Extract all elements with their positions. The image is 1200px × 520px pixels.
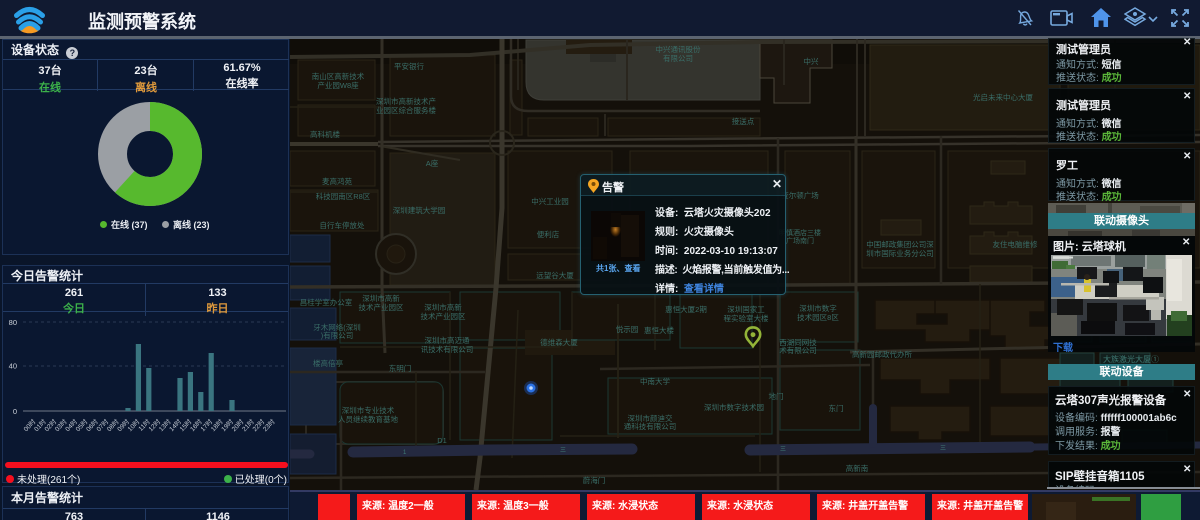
svg-text:中兴工业园: 中兴工业园: [531, 196, 569, 206]
svg-text:自行车停放处: 自行车停放处: [320, 220, 365, 230]
svg-text:便利店: 便利店: [537, 229, 560, 239]
svg-text:三: 三: [940, 445, 946, 452]
svg-text:术有限公司: 术有限公司: [779, 345, 817, 355]
svg-text:悦示园: 悦示园: [616, 324, 639, 334]
svg-text:0: 0: [13, 407, 17, 416]
svg-text:80: 80: [9, 318, 17, 327]
svg-text:业园区综合服务楼: 业园区综合服务楼: [376, 105, 436, 115]
svg-text:程实验室大楼: 程实验室大楼: [724, 313, 769, 323]
svg-text:三: 三: [780, 446, 786, 453]
svg-text:技术园区8区: 技术园区8区: [797, 312, 839, 322]
svg-text:中兴通讯股份: 中兴通讯股份: [656, 44, 701, 54]
svg-text:技术产业园区: 技术产业园区: [359, 302, 404, 312]
svg-text:德维森大厦: 德维森大厦: [540, 337, 578, 347]
svg-text:楼高倍亭: 楼高倍亭: [313, 358, 343, 368]
svg-text:深圳市专业技术: 深圳市专业技术: [342, 405, 395, 415]
svg-text:圳市国际业务分公司: 圳市国际业务分公司: [866, 248, 934, 258]
svg-text:接送点: 接送点: [732, 116, 755, 126]
svg-text:昌桂学室办公室: 昌桂学室办公室: [300, 297, 353, 307]
svg-text:三: 三: [560, 447, 566, 454]
svg-text:麦高鸿苑: 麦高鸿苑: [322, 176, 352, 186]
svg-text:远望谷大厦: 远望谷大厦: [536, 270, 574, 280]
svg-text:深圳市高新: 深圳市高新: [424, 302, 462, 312]
svg-text:人员继续教育基地: 人员继续教育基地: [338, 414, 398, 424]
svg-text:通科技有限公司: 通科技有限公司: [624, 421, 677, 431]
svg-text:科技园南区R8区: 科技园南区R8区: [316, 191, 371, 201]
svg-text:深圳市高新: 深圳市高新: [362, 293, 400, 303]
svg-text:高新园邮政代办所: 高新园邮政代办所: [852, 349, 912, 359]
svg-text:惠恒大楼: 惠恒大楼: [644, 325, 674, 335]
svg-text:深圳市高新技术产: 深圳市高新技术产: [376, 96, 436, 106]
svg-text:蔚海门: 蔚海门: [583, 475, 606, 485]
svg-text:查尔顿广场: 查尔顿广场: [781, 190, 819, 200]
svg-text:高新南: 高新南: [846, 463, 869, 473]
svg-text:讯技术有限公司: 讯技术有限公司: [421, 344, 474, 354]
svg-text:技术产业园区: 技术产业园区: [421, 311, 466, 321]
svg-text:高科机楼: 高科机楼: [310, 129, 340, 139]
svg-text:东明门: 东明门: [389, 363, 412, 373]
svg-text:中国邮政集团公司深: 中国邮政集团公司深: [866, 239, 934, 249]
svg-text:广场南门: 广场南门: [786, 236, 814, 245]
svg-text:东门: 东门: [829, 403, 844, 413]
svg-text:深圳市数字: 深圳市数字: [799, 303, 837, 313]
svg-text:南山区高新技术: 南山区高新技术: [312, 71, 365, 81]
svg-text:有限公司: 有限公司: [663, 53, 693, 63]
svg-text:40: 40: [9, 362, 17, 371]
svg-text:深圳市高迈通: 深圳市高迈通: [425, 335, 470, 345]
svg-text:)有限公司: )有限公司: [321, 330, 354, 340]
svg-text:中南大学: 中南大学: [640, 376, 670, 386]
svg-text:深圳市数字技术园: 深圳市数字技术园: [704, 402, 764, 412]
svg-text:中兴: 中兴: [804, 56, 819, 66]
svg-text:产业园W8座: 产业园W8座: [317, 80, 359, 90]
svg-text:深圳建筑大学园: 深圳建筑大学园: [393, 205, 446, 215]
svg-text:平安银行: 平安银行: [394, 61, 424, 71]
svg-text:深圳国家工: 深圳国家工: [727, 304, 765, 314]
svg-text:A座: A座: [426, 158, 439, 168]
svg-text:地门: 地门: [769, 391, 784, 401]
svg-text:D1: D1: [437, 436, 447, 445]
svg-text:惠恒大厦2期: 惠恒大厦2期: [665, 304, 707, 314]
svg-text:友住电脑维修: 友住电脑维修: [993, 239, 1038, 249]
svg-text:光启未来中心大厦: 光启未来中心大厦: [973, 92, 1033, 102]
